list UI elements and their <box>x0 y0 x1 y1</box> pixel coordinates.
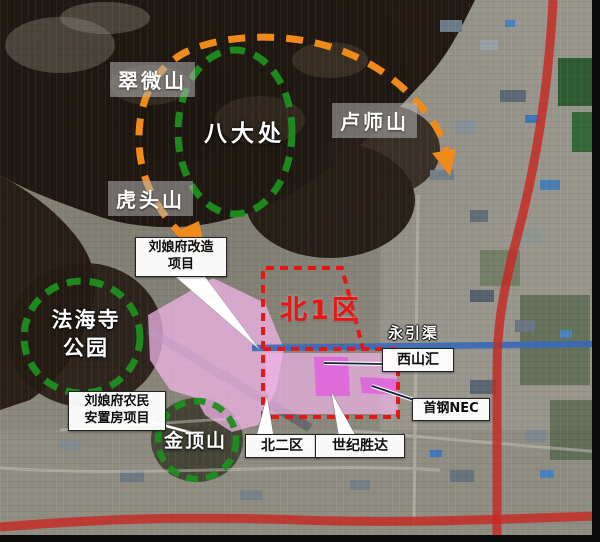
route-arrowhead-right-icon <box>432 149 456 176</box>
east-west-road <box>0 516 600 527</box>
resettlement-project-line1: 刘娘府农民 <box>73 394 161 411</box>
hutoushan-peak-label: 虎头山 <box>108 181 193 216</box>
resettlement-project-line2: 安置房项目 <box>73 411 161 428</box>
cuiweishan-peak-label: 翠微山 <box>110 62 195 97</box>
bottom-edge-strip <box>0 535 600 542</box>
north-zone1-label: 北1区 <box>280 288 362 327</box>
xishanhui-leader-line <box>324 363 384 364</box>
xishanhui-callout: 西山汇 <box>382 348 454 372</box>
annotation-overlay <box>0 0 600 542</box>
right-edge-strip <box>592 0 600 542</box>
north-zone2-callout: 北二区 <box>245 434 319 458</box>
fahaisi-park-label-line2: 公园 <box>26 334 146 362</box>
liuniangfu-renewal-callout: 刘娘府改造 项目 <box>135 237 227 277</box>
shougang-nec-callout: 首钢NEC <box>412 398 490 421</box>
north-south-road <box>497 0 553 542</box>
jindingshan-label: 金顶山 <box>164 426 227 453</box>
shiji-shengda-callout: 世纪胜达 <box>315 434 405 458</box>
resettlement-project-callout: 刘娘府农民 安置房项目 <box>68 391 166 431</box>
liuniangfu-renewal-line2: 项目 <box>140 257 222 274</box>
fahaisi-park-label: 法海寺 公园 <box>26 306 146 363</box>
liuniangfu-renewal-line1: 刘娘府改造 <box>140 240 222 257</box>
satellite-map: 翠微山 卢师山 虎头山 八大处 法海寺 公园 金顶山 北1区 永引渠 刘娘府改造… <box>0 0 600 542</box>
badachu-label: 八大处 <box>204 114 285 148</box>
lushishan-peak-label: 卢师山 <box>332 103 417 138</box>
yongyin-canal-label: 永引渠 <box>388 322 439 343</box>
fahaisi-park-label-line1: 法海寺 <box>26 306 146 334</box>
